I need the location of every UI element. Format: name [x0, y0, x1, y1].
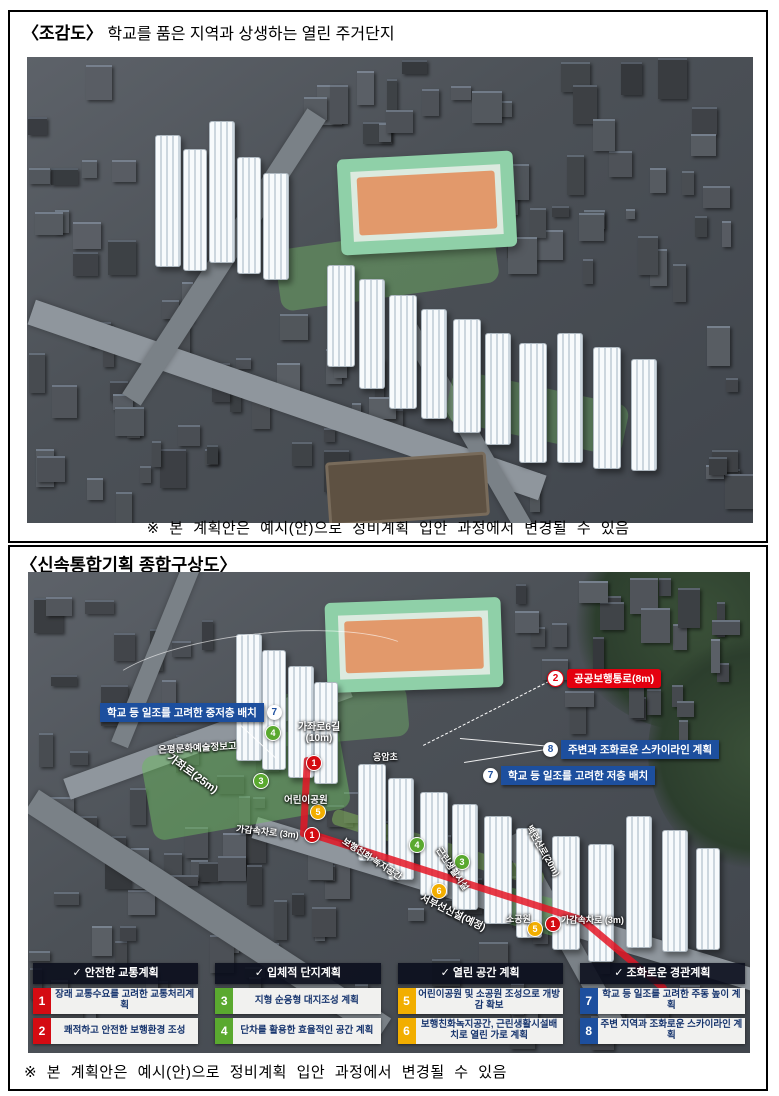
apartment-tower — [183, 149, 207, 271]
apartment-tower — [593, 347, 621, 469]
callout-skyline-number: 8 — [543, 742, 558, 757]
legend-item-number: 6 — [398, 1018, 416, 1044]
map-marker: 3 — [253, 773, 269, 789]
legend-column-site: ✓ 입체적 단지계획 3 지형 순응형 대지조성 계획 4 단차를 활용한 효율… — [215, 963, 380, 1050]
apartment-tower — [359, 279, 385, 389]
legend-item-number: 5 — [398, 988, 416, 1014]
legend-item-text: 어린이공원 및 소공원 조성으로 개방감 확보 — [416, 988, 563, 1014]
map-marker: 1 — [545, 916, 561, 932]
callout-public-walkway-number: 2 — [547, 670, 564, 687]
legend-item: 3 지형 순응형 대지조성 계획 — [215, 988, 380, 1014]
legend-item: 8 주변 지역과 조화로운 스카이라인 계획 — [580, 1018, 745, 1044]
apartment-tower — [552, 836, 580, 950]
legend-header-landscape: ✓ 조화로운 경관계획 — [580, 963, 745, 984]
road-label-gajwa6-line2: (10m) — [306, 733, 333, 744]
legend-column-open-space: ✓ 열린 공간 계획 5 어린이공원 및 소공원 조성으로 개방감 확보 6 보… — [398, 963, 563, 1050]
legend-item-text: 장래 교통수요를 고려한 교통처리계획 — [51, 988, 198, 1014]
road-label-gajwa6: 가좌로6길 (10m) — [286, 722, 352, 744]
apartment-tower — [327, 265, 355, 367]
apartment-tower — [237, 157, 261, 274]
plan-legend: ✓ 안전한 교통계획 1 장래 교통수요를 고려한 교통처리계획 2 쾌적하고 … — [33, 963, 745, 1050]
legend-item-text: 보행친화녹지공간, 근린생활시설배치로 열린 가로 계획 — [416, 1018, 563, 1044]
apartment-tower — [453, 319, 481, 433]
map-marker: 4 — [265, 725, 281, 741]
legend-item-number: 7 — [580, 988, 598, 1014]
callout-midlow-number: 7 — [267, 705, 282, 720]
legend-item: 1 장래 교통수요를 고려한 교통처리계획 — [33, 988, 198, 1014]
road-label-gajwa6-line1: 가좌로6길 — [298, 722, 340, 733]
callout-lowrise: 7 학교 등 일조를 고려한 저층 배치 — [483, 766, 655, 785]
legend-item-number: 4 — [215, 1018, 233, 1044]
legend-item-number: 8 — [580, 1018, 598, 1044]
legend-header-traffic: ✓ 안전한 교통계획 — [33, 963, 198, 984]
road-label-accel-right: 가감속차로 (3m) — [561, 913, 624, 926]
apartment-tower — [631, 359, 657, 471]
legend-item: 7 학교 등 일조를 고려한 주동 높이 계획 — [580, 988, 745, 1014]
map-marker: 5 — [310, 804, 326, 820]
legend-item-number: 1 — [33, 988, 51, 1014]
legend-column-traffic: ✓ 안전한 교통계획 1 장래 교통수요를 고려한 교통처리계획 2 쾌적하고 … — [33, 963, 198, 1050]
birdseye-title: 〈조감도〉 학교를 품은 지역과 상생하는 열린 주거단지 — [22, 19, 395, 44]
callout-lowrise-label: 학교 등 일조를 고려한 저층 배치 — [501, 766, 655, 785]
legend-item-text: 주변 지역과 조화로운 스카이라인 계획 — [598, 1018, 745, 1044]
apartment-tower — [421, 309, 447, 419]
masterplan-aerial-render: 학교 등 일조를 고려한 중저층 배치 7 2 공공보행통로(8m) 8 주변과… — [28, 572, 750, 1053]
legend-column-landscape: ✓ 조화로운 경관계획 7 학교 등 일조를 고려한 주동 높이 계획 8 주변… — [580, 963, 745, 1050]
legend-item: 6 보행친화녹지공간, 근린생활시설배치로 열린 가로 계획 — [398, 1018, 563, 1044]
apartment-tower — [519, 343, 547, 463]
callout-public-walkway: 2 공공보행통로(8m) — [547, 669, 661, 688]
map-marker: 1 — [304, 827, 320, 843]
legend-item-text: 학교 등 일조를 고려한 주동 높이 계획 — [598, 988, 745, 1014]
callout-skyline: 8 주변과 조화로운 스카이라인 계획 — [543, 740, 719, 759]
label-school-elem: 응암초 — [373, 750, 398, 763]
legend-header-site: ✓ 입체적 단지계획 — [215, 963, 380, 984]
legend-item-text: 쾌적하고 안전한 보행환경 조성 — [51, 1018, 198, 1044]
callout-midlow-height: 학교 등 일조를 고려한 중저층 배치 7 — [100, 703, 282, 722]
birdseye-section: 〈조감도〉 학교를 품은 지역과 상생하는 열린 주거단지 — [8, 10, 768, 543]
birdseye-title-text: 학교를 품은 지역과 상생하는 열린 주거단지 — [107, 26, 394, 43]
legend-item: 2 쾌적하고 안전한 보행환경 조성 — [33, 1018, 198, 1044]
apartment-tower — [263, 173, 289, 280]
legend-item: 5 어린이공원 및 소공원 조성으로 개방감 확보 — [398, 988, 563, 1014]
apartment-tower — [484, 816, 512, 924]
apartment-tower — [626, 816, 652, 948]
callout-lowrise-number: 7 — [483, 768, 498, 783]
apartment-tower — [209, 121, 235, 263]
apartment-tower — [155, 135, 181, 267]
masterplan-caption: ※ 본 계획안은 예시(안)으로 정비계획 입안 과정에서 변경될 수 있음 — [24, 1061, 507, 1082]
legend-item-text: 지형 순응형 대지조성 계획 — [233, 988, 380, 1014]
legend-item-number: 3 — [215, 988, 233, 1014]
apartment-tower — [696, 848, 720, 950]
legend-header-open-space: ✓ 열린 공간 계획 — [398, 963, 563, 984]
birdseye-aerial-render — [27, 57, 753, 523]
callout-skyline-label: 주변과 조화로운 스카이라인 계획 — [561, 740, 719, 759]
apartment-tower — [485, 333, 511, 445]
label-small-park: 소공원 — [506, 912, 531, 925]
legend-item: 4 단차를 활용한 효율적인 공간 계획 — [215, 1018, 380, 1044]
legend-item-number: 2 — [33, 1018, 51, 1044]
birdseye-title-tag: 〈조감도〉 — [22, 24, 103, 43]
callout-midlow-label: 학교 등 일조를 고려한 중저층 배치 — [100, 703, 264, 722]
apartment-tower — [557, 333, 583, 463]
label-children-park: 어린이공원 — [284, 792, 328, 806]
map-marker: 4 — [409, 837, 425, 853]
apartment-tower — [389, 295, 417, 409]
callout-public-walkway-label: 공공보행통로(8m) — [567, 669, 661, 688]
legend-item-text: 단차를 활용한 효율적인 공간 계획 — [233, 1018, 380, 1044]
tower-layer — [27, 57, 753, 523]
apartment-tower — [662, 830, 688, 952]
masterplan-section: 〈신속통합기획 종합구상도〉 — [8, 545, 768, 1091]
map-marker: 1 — [306, 755, 322, 771]
